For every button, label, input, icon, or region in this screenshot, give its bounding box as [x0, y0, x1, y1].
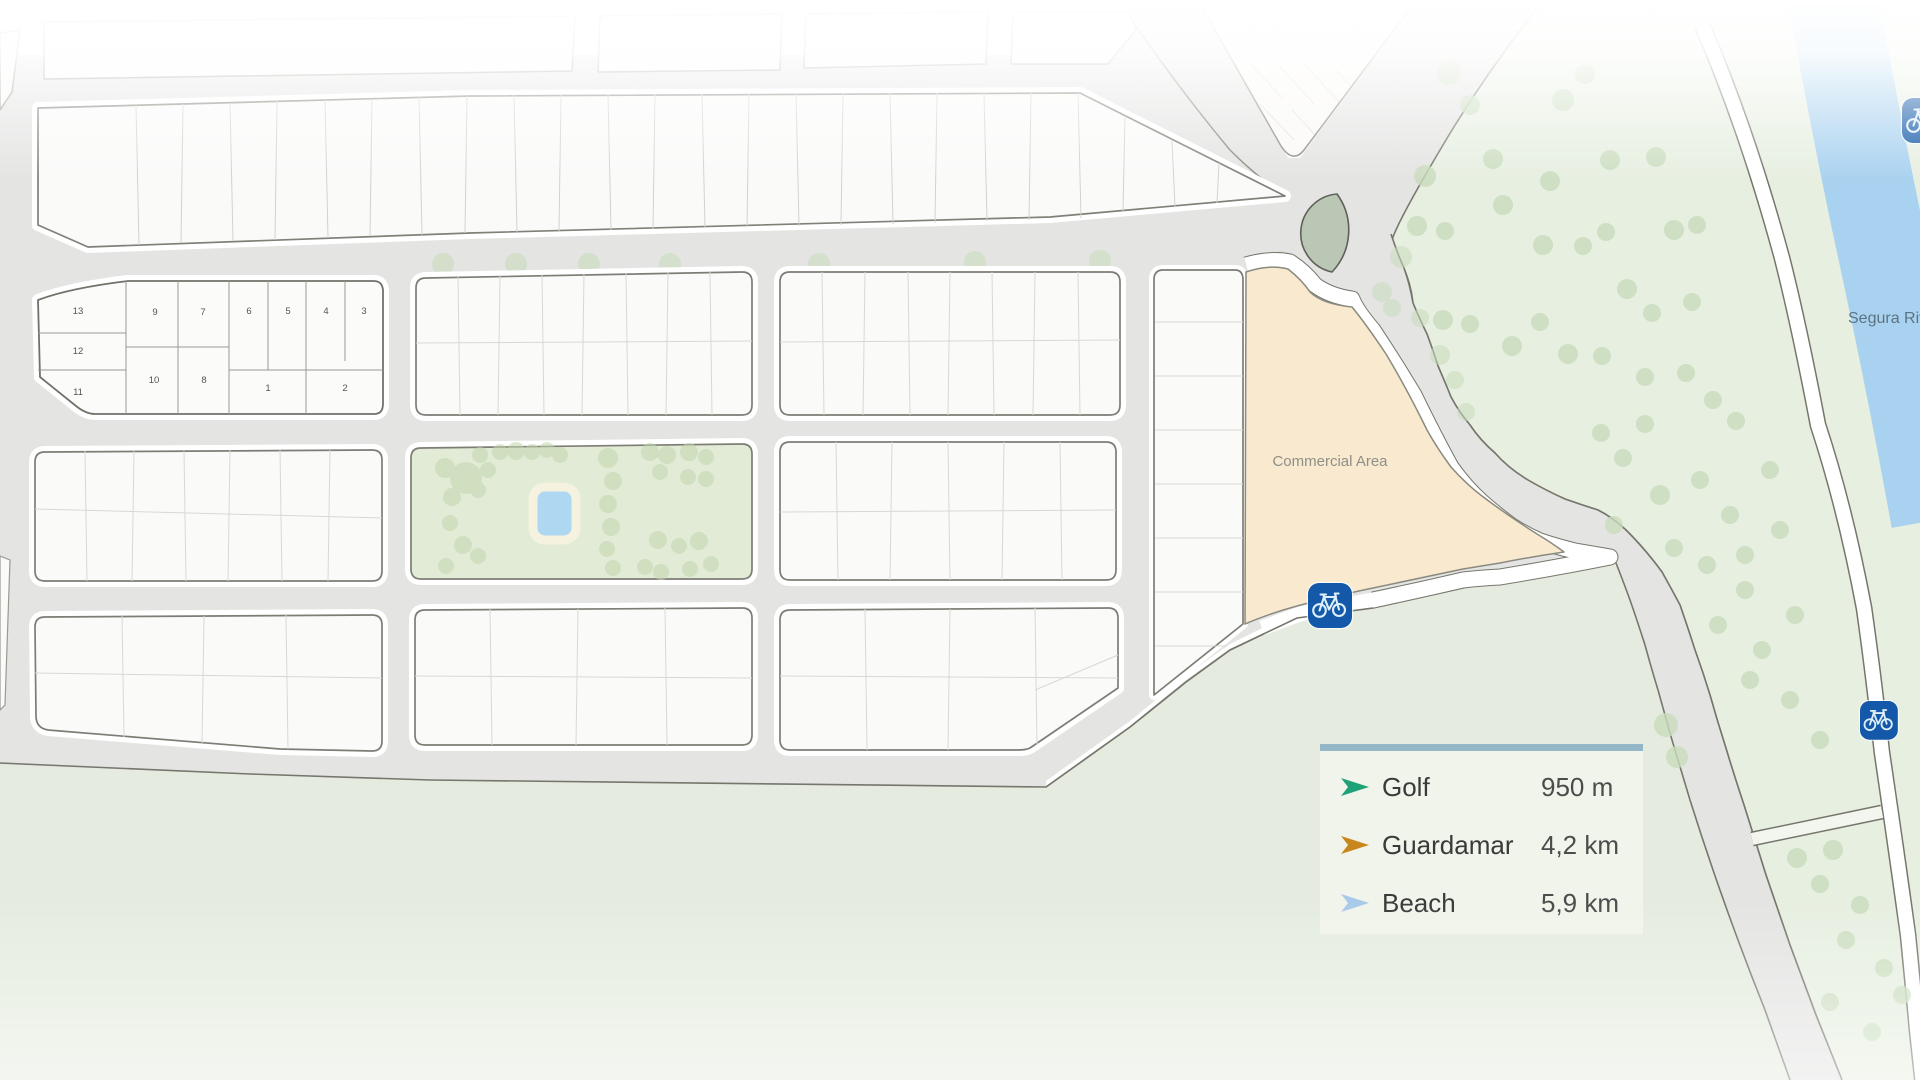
svg-text:12: 12	[73, 346, 84, 357]
svg-text:5: 5	[285, 306, 290, 317]
svg-text:8: 8	[201, 375, 206, 386]
svg-text:1: 1	[265, 383, 270, 394]
svg-text:7: 7	[200, 307, 205, 318]
svg-text:950 m: 950 m	[1541, 772, 1613, 802]
svg-text:10: 10	[149, 375, 160, 386]
svg-text:6: 6	[246, 306, 251, 317]
svg-text:Golf: Golf	[1382, 772, 1430, 802]
svg-text:3: 3	[361, 306, 366, 317]
svg-text:2: 2	[342, 383, 347, 394]
svg-text:4: 4	[323, 306, 328, 317]
svg-text:11: 11	[73, 387, 83, 398]
svg-text:13: 13	[73, 306, 84, 317]
svg-text:Segura River: Segura River	[1848, 310, 1920, 327]
svg-text:Guardamar: Guardamar	[1382, 830, 1514, 860]
svg-text:Commercial Area: Commercial Area	[1272, 453, 1388, 470]
svg-text:4,2 km: 4,2 km	[1541, 830, 1619, 860]
svg-text:9: 9	[152, 307, 157, 318]
